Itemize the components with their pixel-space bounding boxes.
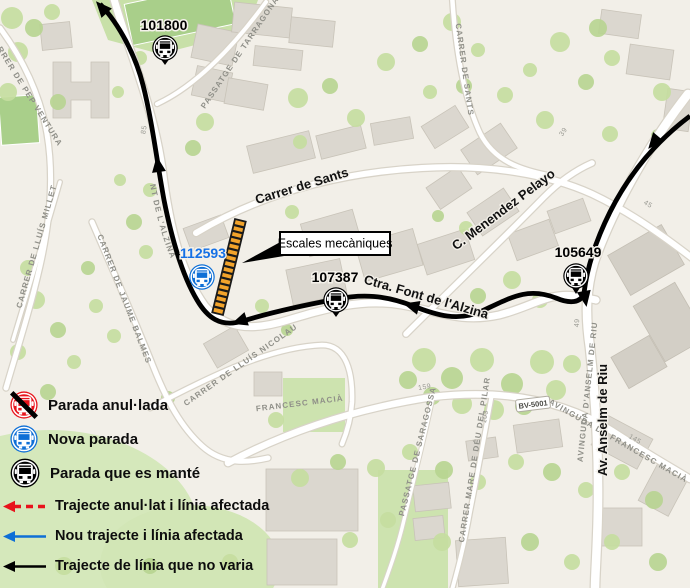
legend-item-kept-stop: Parada que es manté <box>8 456 200 490</box>
legend-label: Parada que es manté <box>50 465 200 482</box>
legend-item-new-stop: Nova parada <box>8 423 138 455</box>
bus-stop-101800-label: 101800 <box>141 17 188 33</box>
route-new-arrow-icon <box>2 529 47 544</box>
new-stop-icon <box>8 423 40 455</box>
legend-label: Trajecte de línia que no varia <box>55 558 253 574</box>
legend-item-cancelled-route: Trajecte anul·lat i línia afectada <box>2 498 269 514</box>
legend-item-unchanged-route: Trajecte de línia que no varia <box>2 558 253 574</box>
cancelled-stop-icon <box>8 389 40 421</box>
kept-stop-icon <box>8 456 42 490</box>
bus-stop-107387-label: 107387 <box>312 269 359 285</box>
legend-label: Trajecte anul·lat i línia afectada <box>55 498 269 514</box>
house-number: 49 <box>574 318 582 327</box>
bus-stop-105649-label: 105649 <box>555 244 602 260</box>
callout-label: Escales mecàniques <box>278 237 393 251</box>
bus-stop-112593-icon <box>189 264 214 289</box>
street-label-av-anselm-de-riu: Av. Anselm de Riu <box>595 364 610 476</box>
transit-map-infographic: CARRER DE PEP VENTURA PASSATGE DE TARRAG… <box>0 0 690 588</box>
legend-label: Nova parada <box>48 431 138 448</box>
legend-label: Parada anul·lada <box>48 397 168 414</box>
legend-label: Nou trajecte i línia afectada <box>55 528 243 544</box>
route-unchanged-arrow-icon <box>2 559 47 574</box>
legend-item-new-route: Nou trajecte i línia afectada <box>2 528 243 544</box>
route-cancelled-arrow-icon <box>2 499 47 514</box>
bus-stop-112593-label: 112593 <box>180 245 226 261</box>
legend-item-cancelled-stop: Parada anul·lada <box>8 389 168 421</box>
